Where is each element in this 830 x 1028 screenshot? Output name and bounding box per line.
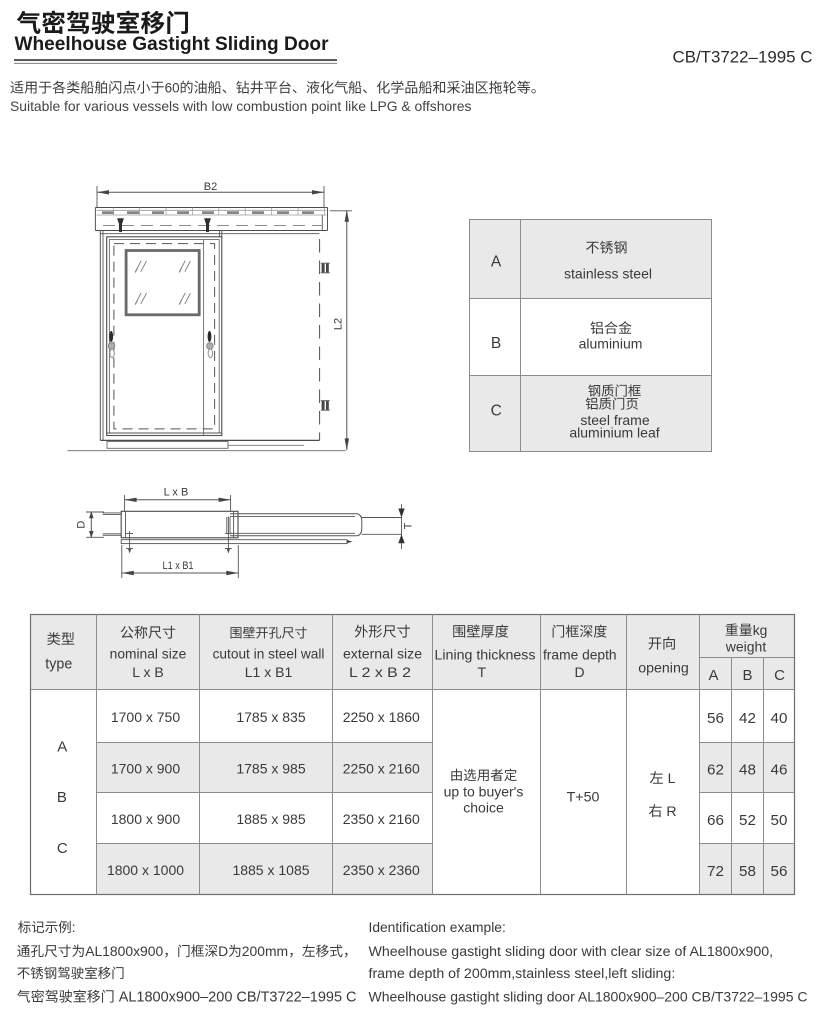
svg-text:L: L (668, 771, 676, 787)
svg-text:B: B (742, 667, 752, 684)
svg-text:72: 72 (707, 863, 724, 880)
svg-text:58: 58 (739, 863, 756, 880)
svg-text:1785 x 985: 1785 x 985 (236, 760, 305, 776)
svg-text:66: 66 (707, 812, 724, 829)
svg-text:up to buyer's: up to buyer's (444, 784, 524, 800)
svg-text:nominal size: nominal size (110, 647, 187, 662)
svg-text:L 2 x B 2: L 2 x B 2 (349, 664, 411, 680)
svg-text:56: 56 (707, 710, 724, 727)
svg-text:2350 x 2360: 2350 x 2360 (343, 862, 420, 878)
svg-text:46: 46 (771, 761, 788, 778)
svg-text:1885 x 1085: 1885 x 1085 (232, 862, 309, 878)
svg-text:choice: choice (463, 800, 504, 816)
svg-text:40: 40 (771, 710, 788, 727)
svg-text:frame depth of 200mm,stainless: frame depth of 200mm,stainless steel,lef… (369, 966, 676, 982)
svg-text:B: B (57, 789, 67, 806)
svg-text:50: 50 (771, 812, 788, 829)
svg-text:T: T (403, 522, 415, 529)
svg-text:1885 x 985: 1885 x 985 (236, 811, 305, 827)
svg-text:2250 x 1860: 2250 x 1860 (343, 709, 420, 725)
svg-text:2250 x 2160: 2250 x 2160 (343, 760, 420, 776)
svg-text:D: D (76, 521, 88, 529)
svg-text:R: R (666, 804, 676, 820)
svg-text:cutout in steel wall: cutout in steel wall (213, 647, 325, 662)
svg-text:A: A (57, 739, 67, 756)
svg-text:2350 x 2160: 2350 x 2160 (343, 811, 420, 827)
svg-text:C: C (57, 840, 68, 857)
svg-text:1700 x 750: 1700 x 750 (111, 709, 180, 725)
svg-text:A: A (491, 253, 502, 270)
svg-text:52: 52 (739, 812, 756, 829)
svg-text:1800 x 1000: 1800 x 1000 (107, 862, 184, 878)
svg-text:Wheelhouse gastight sliding do: Wheelhouse gastight sliding door with cl… (369, 944, 774, 960)
svg-text:Wheelhouse gastight sliding do: Wheelhouse gastight sliding door AL1800x… (369, 989, 808, 1005)
svg-text:48: 48 (739, 761, 756, 778)
svg-text:T: T (478, 664, 487, 680)
svg-text:Identification example:: Identification example: (369, 920, 506, 935)
svg-text:62: 62 (707, 761, 724, 778)
svg-text:aluminium leaf: aluminium leaf (569, 425, 659, 441)
svg-text:kg: kg (753, 623, 768, 638)
svg-text:L2: L2 (333, 318, 345, 330)
svg-text:C: C (774, 667, 785, 684)
svg-text:aluminium: aluminium (579, 336, 643, 352)
svg-text:type: type (45, 657, 72, 673)
svg-text::: : (72, 920, 76, 935)
svg-text:Wheelhouse Gastight Sliding Do: Wheelhouse Gastight Sliding Door (15, 34, 330, 55)
svg-text:CB/T3722–1995 C: CB/T3722–1995 C (673, 48, 813, 67)
svg-text:stainless steel: stainless steel (564, 266, 652, 282)
svg-text:1785 x 835: 1785 x 835 (236, 709, 305, 725)
svg-text:opening: opening (638, 661, 689, 677)
svg-text:42: 42 (739, 710, 756, 727)
svg-text:L1 x B1: L1 x B1 (163, 560, 194, 572)
svg-text:1700 x 900: 1700 x 900 (111, 760, 180, 776)
svg-text:B: B (491, 335, 501, 352)
svg-text:D: D (574, 664, 584, 680)
svg-text:Suitable for various vessels w: Suitable for various vessels with low co… (10, 98, 471, 114)
svg-text:external size: external size (343, 646, 422, 662)
svg-text:A: A (708, 667, 718, 684)
svg-text:T+50: T+50 (567, 790, 600, 806)
svg-text:60: 60 (165, 81, 180, 96)
svg-text:Lining thickness: Lining thickness (435, 648, 536, 664)
svg-text:B2: B2 (204, 181, 217, 193)
svg-text:56: 56 (771, 863, 788, 880)
svg-text:C: C (491, 403, 502, 420)
svg-text:D: D (218, 943, 228, 959)
svg-text:200mm: 200mm (242, 943, 288, 959)
svg-text:1800 x 900: 1800 x 900 (111, 811, 180, 827)
svg-text:L1 x B1: L1 x B1 (245, 664, 293, 680)
svg-text:weight: weight (725, 639, 767, 655)
svg-text:L x B: L x B (132, 664, 163, 680)
svg-text:AL1800x900–200 CB/T3722–1995 C: AL1800x900–200 CB/T3722–1995 C (119, 990, 357, 1006)
svg-text:L x B: L x B (164, 486, 189, 498)
svg-text:frame depth: frame depth (543, 648, 617, 663)
svg-text:AL1800x900: AL1800x900 (85, 943, 163, 959)
